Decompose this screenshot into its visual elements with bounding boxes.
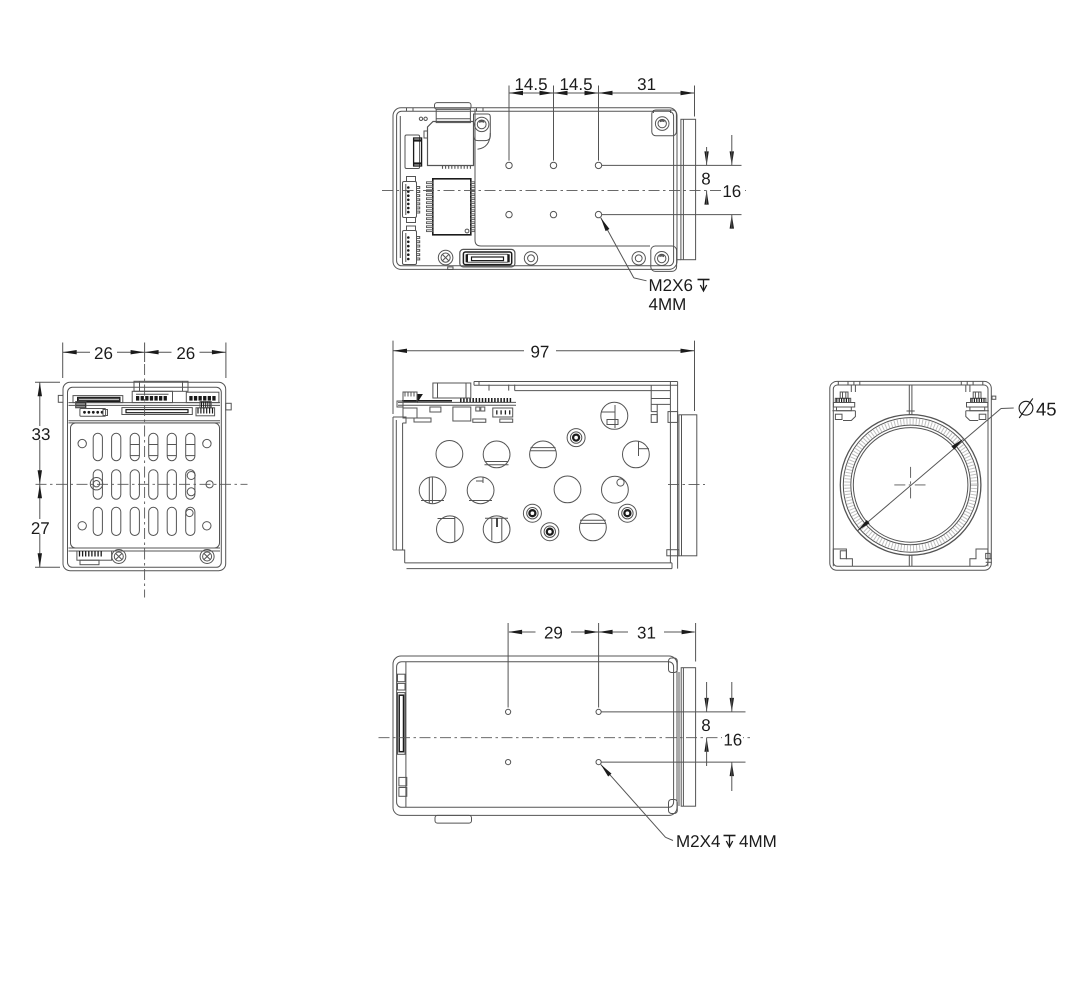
- svg-text:4MM: 4MM: [739, 832, 777, 851]
- svg-text:45: 45: [1036, 399, 1057, 420]
- svg-text:16: 16: [723, 730, 742, 749]
- svg-text:14.5: 14.5: [559, 75, 592, 94]
- svg-text:29: 29: [544, 624, 563, 643]
- svg-text:26: 26: [94, 344, 113, 363]
- svg-text:4MM: 4MM: [649, 295, 687, 314]
- svg-text:8: 8: [701, 169, 710, 188]
- svg-text:33: 33: [32, 425, 51, 444]
- svg-text:M2X4: M2X4: [676, 832, 720, 851]
- svg-text:M2X6: M2X6: [649, 276, 693, 295]
- svg-text:8: 8: [701, 716, 710, 735]
- svg-text:27: 27: [31, 519, 50, 538]
- svg-text:31: 31: [637, 624, 656, 643]
- svg-text:31: 31: [637, 75, 656, 94]
- svg-text:26: 26: [176, 344, 195, 363]
- svg-text:16: 16: [722, 182, 741, 201]
- svg-text:97: 97: [530, 342, 549, 361]
- svg-text:14.5: 14.5: [514, 75, 547, 94]
